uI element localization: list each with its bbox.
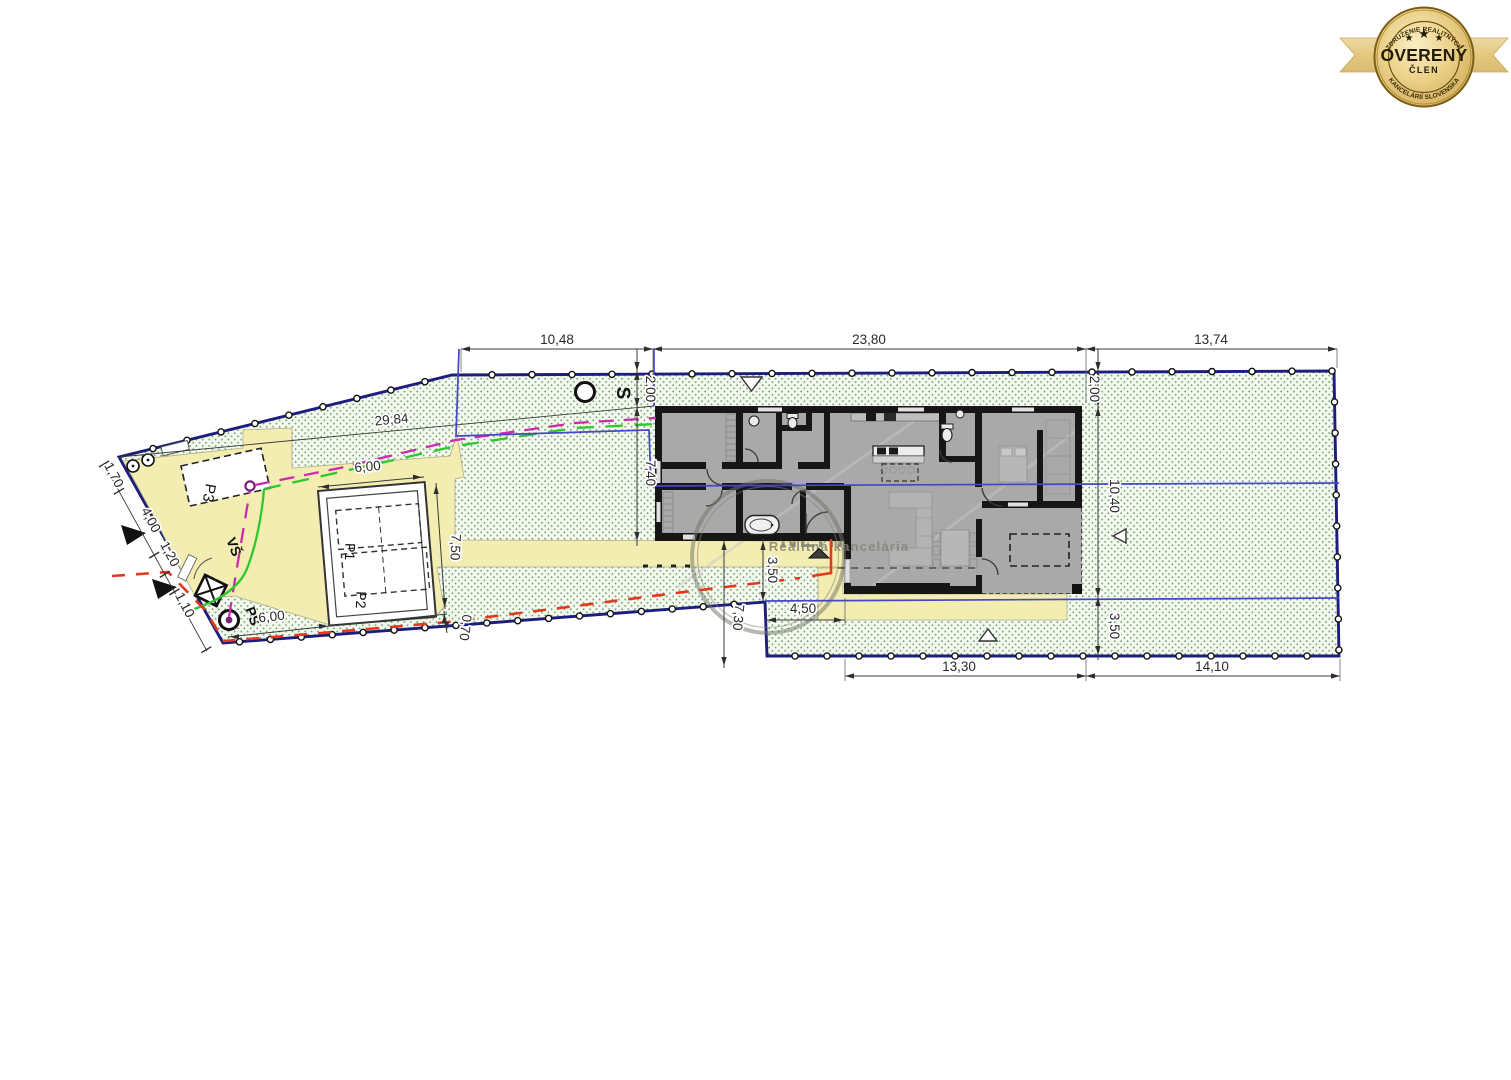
svg-text:13,30: 13,30 — [942, 659, 976, 674]
svg-text:0,70: 0,70 — [456, 614, 474, 642]
svg-text:7,50: 7,50 — [447, 534, 463, 561]
svg-text:13,74: 13,74 — [1194, 332, 1228, 347]
svg-text:P2: P2 — [353, 591, 370, 609]
svg-text:6,00: 6,00 — [354, 458, 381, 475]
svg-text:ČLEN: ČLEN — [1409, 64, 1439, 75]
svg-text:7,40: 7,40 — [643, 460, 658, 486]
svg-text:3,50: 3,50 — [1107, 613, 1122, 639]
svg-text:★: ★ — [1435, 33, 1444, 44]
svg-text:14,10: 14,10 — [1195, 659, 1229, 674]
svg-text:3,50: 3,50 — [765, 557, 780, 583]
svg-text:10,48: 10,48 — [540, 332, 574, 347]
svg-text:7,30: 7,30 — [730, 604, 747, 631]
svg-text:10,40: 10,40 — [1107, 479, 1122, 513]
svg-text:P3: P3 — [199, 482, 219, 503]
svg-text:2,00: 2,00 — [1087, 376, 1102, 402]
svg-text:2,00: 2,00 — [643, 376, 658, 402]
svg-text:4,50: 4,50 — [790, 601, 816, 616]
svg-text:★: ★ — [1418, 26, 1430, 41]
svg-text:6,00: 6,00 — [258, 608, 286, 626]
svg-text:23,80: 23,80 — [852, 332, 886, 347]
svg-text:Realitná kancelária: Realitná kancelária — [769, 539, 909, 554]
svg-text:★: ★ — [1405, 33, 1414, 44]
svg-text:P1: P1 — [342, 543, 359, 561]
svg-text:S: S — [612, 387, 633, 400]
svg-text:OVERENÝ: OVERENÝ — [1381, 44, 1468, 65]
